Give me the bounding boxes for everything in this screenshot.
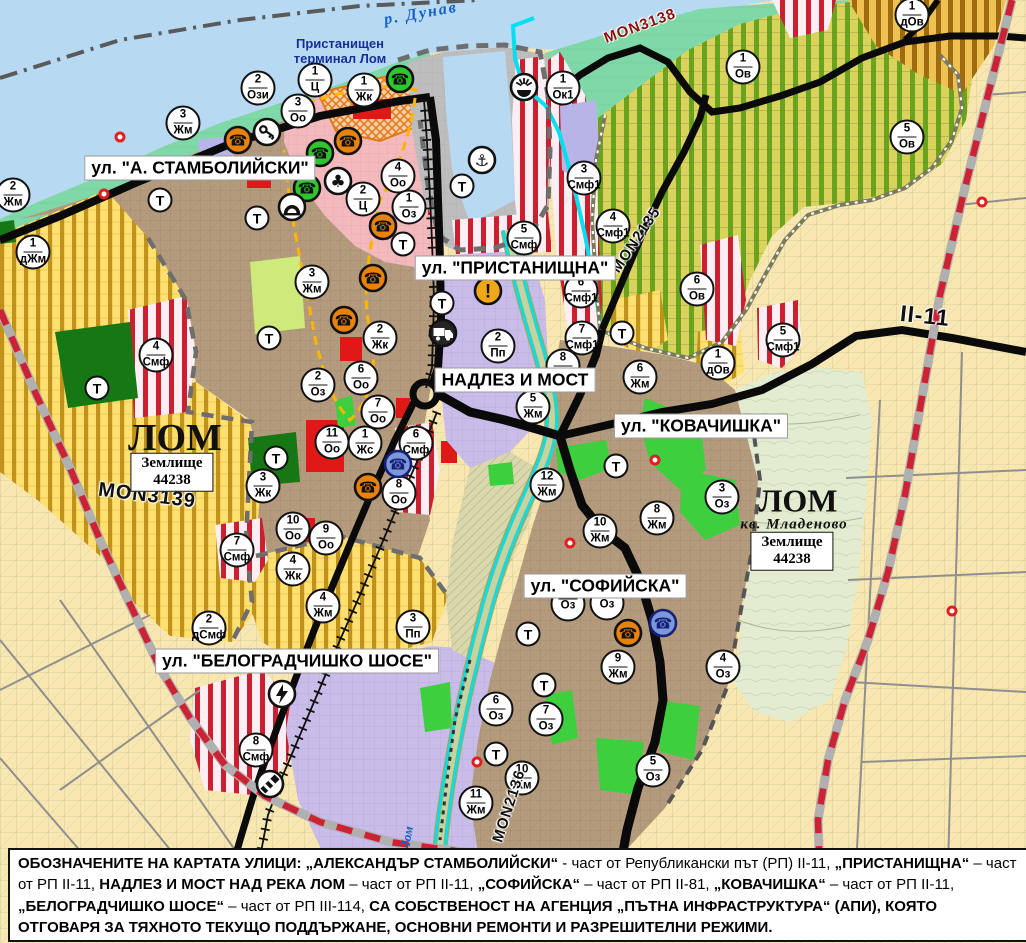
phone-blue-icon: ☎ <box>648 608 678 638</box>
phone-green-icon: ☎ <box>385 64 415 94</box>
street-label: ул. "БЕЛОГРАДЧИШКО ШОСЕ" <box>155 649 439 674</box>
zone-circle-2-Жк: 2Жк <box>363 321 398 356</box>
zone-circle-1-дЖм: 1дЖм <box>16 235 51 270</box>
zone-circle-3-Жк: 3Жк <box>246 469 281 504</box>
zone-circle-3-Жм: 3Жм <box>295 265 330 300</box>
land-plate-44238: Землище44238 <box>130 453 213 492</box>
t-zone-circle: Т <box>245 206 270 231</box>
red-dot-marker <box>650 455 661 466</box>
t-zone-circle: Т <box>264 446 289 471</box>
t-zone-circle: Т <box>516 622 541 647</box>
truck-icon <box>428 318 458 348</box>
legend-note: ОБОЗНАЧЕНИТЕ НА КАРТАТА УЛИЦИ: „АЛЕКСАНД… <box>8 848 1026 942</box>
red-dot-marker <box>99 189 110 200</box>
zone-circle-5-Ов: 5Ов <box>890 120 925 155</box>
svg-text:♣: ♣ <box>330 172 345 192</box>
zone-circle-6-Оз: 6Оз <box>479 692 514 727</box>
zone-circle-3-Жм: 3Жм <box>166 106 201 141</box>
zone-circle-5-Смф1: 5Смф1 <box>766 323 801 358</box>
zone-circle-3-Оз: 3Оз <box>705 480 740 515</box>
zone-circle-5-Жм: 5Жм <box>516 390 551 425</box>
phone-orange-icon: ☎ <box>223 125 253 155</box>
zone-circle-1-Жс: 1Жс <box>348 426 383 461</box>
zone-circle-8-Оо: 8Оо <box>382 476 417 511</box>
zone-circle-2-Жм: 2Жм <box>0 178 31 213</box>
zone-circle-10-Оо: 10Оо <box>276 512 311 547</box>
street-label: ул. "СОФИЙСКА" <box>524 574 687 599</box>
svg-text:☎: ☎ <box>391 71 410 89</box>
zone-circle-2-Оз: 2Оз <box>301 368 336 403</box>
zone-circle-1-Ов: 1Ов <box>726 50 761 85</box>
zone-circle-5-Смф: 5Смф <box>507 221 542 256</box>
zone-circle-7-Оз: 7Оз <box>529 702 564 737</box>
zone-circle-4-Оо: 4Оо <box>381 159 416 194</box>
zone-circle-4-Жм: 4Жм <box>306 589 341 624</box>
svg-text:☎: ☎ <box>374 218 393 236</box>
svg-text:☎: ☎ <box>339 133 358 151</box>
t-zone-circle: Т <box>610 321 635 346</box>
city-label-lom: ЛОМ <box>759 483 838 520</box>
zone-circle-3-Оо: 3Оо <box>281 94 316 129</box>
t-zone-circle: Т <box>148 188 173 213</box>
zone-circle-11-Жм: 11Жм <box>459 786 494 821</box>
map-canvas: 2Ози1Ц1Жк3Жм3Оо2Жм4Оо2Ц1Оз1дЖм1Ок13Смф14… <box>0 0 1026 943</box>
zone-circle-3-Пп: 3Пп <box>396 610 431 645</box>
zone-circle-1-Ц: 1Ц <box>298 63 333 98</box>
sun-icon <box>509 72 539 102</box>
phone-orange-icon: ☎ <box>358 263 388 293</box>
trefoil-icon: ♣ <box>323 166 353 196</box>
zone-circle-1-Ок1: 1Ок1 <box>546 71 581 106</box>
barrier-icon <box>255 769 285 799</box>
svg-text:⚓: ⚓ <box>475 151 489 170</box>
phone-orange-icon: ☎ <box>613 618 643 648</box>
zone-circle-2-Ози: 2Ози <box>241 71 276 106</box>
phone-blue-icon: ☎ <box>383 449 413 479</box>
red-dot-marker <box>947 606 958 617</box>
map-annotations: 2Ози1Ц1Жк3Жм3Оо2Жм4Оо2Ц1Оз1дЖм1Ок13Смф14… <box>0 0 1026 943</box>
zone-circle-4-Оз: 4Оз <box>706 650 741 685</box>
zone-circle-4-Смф1: 4Смф1 <box>596 209 631 244</box>
svg-text:☎: ☎ <box>389 456 408 474</box>
t-zone-circle: Т <box>450 174 475 199</box>
zone-circle-1-дОв: 1дОв <box>701 346 736 381</box>
phone-orange-icon: ☎ <box>329 305 359 335</box>
svg-text:!: ! <box>485 282 491 303</box>
zone-circle-7-Смф: 7Смф <box>220 533 255 568</box>
zone-circle-8-Смф: 8Смф <box>239 733 274 768</box>
svg-text:☎: ☎ <box>359 479 378 497</box>
warning-icon: ! <box>473 276 503 306</box>
zone-circle-11-Оо: 11Оо <box>315 425 350 460</box>
phone-orange-icon: ☎ <box>333 126 363 156</box>
zone-circle-6-Жм: 6Жм <box>623 360 658 395</box>
zone-circle-2-Пп: 2Пп <box>481 329 516 364</box>
svg-text:☎: ☎ <box>229 132 248 150</box>
svg-text:☎: ☎ <box>619 625 638 643</box>
land-plate-44238: Землище44238 <box>750 532 833 571</box>
port-terminal-label: Пристанищен терминал Лом <box>294 37 386 67</box>
legend-note-text: ОБОЗНАЧЕНИТЕ НА КАРТАТА УЛИЦИ: „АЛЕКСАНД… <box>18 853 1018 939</box>
phone-orange-icon: ☎ <box>368 211 398 241</box>
red-dot-marker <box>977 197 988 208</box>
zone-circle-7-Оо: 7Оо <box>361 395 396 430</box>
zone-circle-4-Смф: 4Смф <box>139 338 174 373</box>
river-danube-label: р. Дунав <box>383 0 459 29</box>
street-label: НАДЛЕЗ И МОСТ <box>435 368 596 393</box>
t-zone-circle: Т <box>85 376 110 401</box>
phone-orange-icon: ☎ <box>353 472 383 502</box>
zone-circle-3-Смф1: 3Смф1 <box>567 161 602 196</box>
zone-circle-9-Оо: 9Оо <box>309 521 344 556</box>
road-label-ii-11: II-11 <box>899 300 951 332</box>
red-dot-marker <box>565 538 576 549</box>
zone-circle-9-Жм: 9Жм <box>601 650 636 685</box>
key-icon <box>252 117 282 147</box>
t-zone-circle: Т <box>484 742 509 767</box>
road-label-mon3138: MON3138 <box>602 5 679 47</box>
zone-circle-6-Ов: 6Ов <box>680 272 715 307</box>
arch-icon <box>277 192 307 222</box>
zone-circle-1-Жк: 1Жк <box>347 73 382 108</box>
zone-circle-5-Оз: 5Оз <box>636 753 671 788</box>
road-label-mon2136: MON2136 <box>489 768 528 845</box>
t-zone-circle: Т <box>430 291 455 316</box>
anchor-icon: ⚓ <box>467 145 497 175</box>
zone-circle-2-дСмф: 2дСмф <box>192 611 227 646</box>
zone-circle-10-Жм: 10Жм <box>583 514 618 549</box>
zone-circle-8-Жм: 8Жм <box>640 501 675 536</box>
lightning-icon <box>267 679 297 709</box>
zone-circle-6-Оо: 6Оо <box>344 361 379 396</box>
t-zone-circle: Т <box>257 326 282 351</box>
svg-text:☎: ☎ <box>364 270 383 288</box>
street-label: ул. "КОВАЧИШКА" <box>614 414 788 439</box>
red-dot-marker <box>115 132 126 143</box>
red-dot-marker <box>472 757 483 768</box>
svg-text:☎: ☎ <box>335 312 354 330</box>
zone-circle-12-Жм: 12Жм <box>530 468 565 503</box>
svg-text:☎: ☎ <box>654 615 673 633</box>
t-zone-circle: Т <box>604 454 629 479</box>
zone-circle-4-Жк: 4Жк <box>276 552 311 587</box>
t-zone-circle: Т <box>532 673 557 698</box>
zone-circle-1-дОв: 1дОв <box>895 0 930 33</box>
street-label: ул. "А. СТАМБОЛИЙСКИ" <box>84 156 315 181</box>
street-label: ул. "ПРИСТАНИЩНА" <box>415 256 616 281</box>
